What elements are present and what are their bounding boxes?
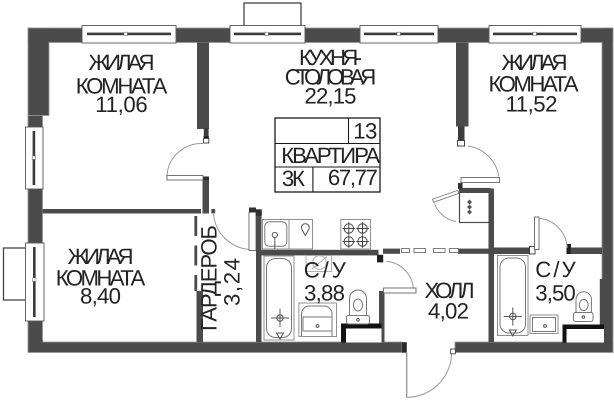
svg-text:8,40: 8,40 [80,284,121,309]
svg-text:С/У: С/У [304,257,347,282]
svg-text:3,24: 3,24 [220,258,245,306]
svg-text:67,77: 67,77 [328,165,378,190]
svg-text:ГАРДЕРОБ: ГАРДЕРОБ [197,225,222,331]
svg-text:3,88: 3,88 [304,281,345,306]
svg-text:3,50: 3,50 [535,281,576,306]
svg-text:С/У: С/У [535,257,576,282]
svg-text:3К: 3К [282,166,305,191]
svg-text:ЖИЛАЯ: ЖИЛАЯ [89,50,155,75]
svg-text:4,02: 4,02 [428,299,469,324]
svg-text:13: 13 [353,118,377,143]
svg-text:11,52: 11,52 [506,92,558,117]
svg-text:11,06: 11,06 [95,92,148,117]
svg-text:22,15: 22,15 [305,84,357,109]
